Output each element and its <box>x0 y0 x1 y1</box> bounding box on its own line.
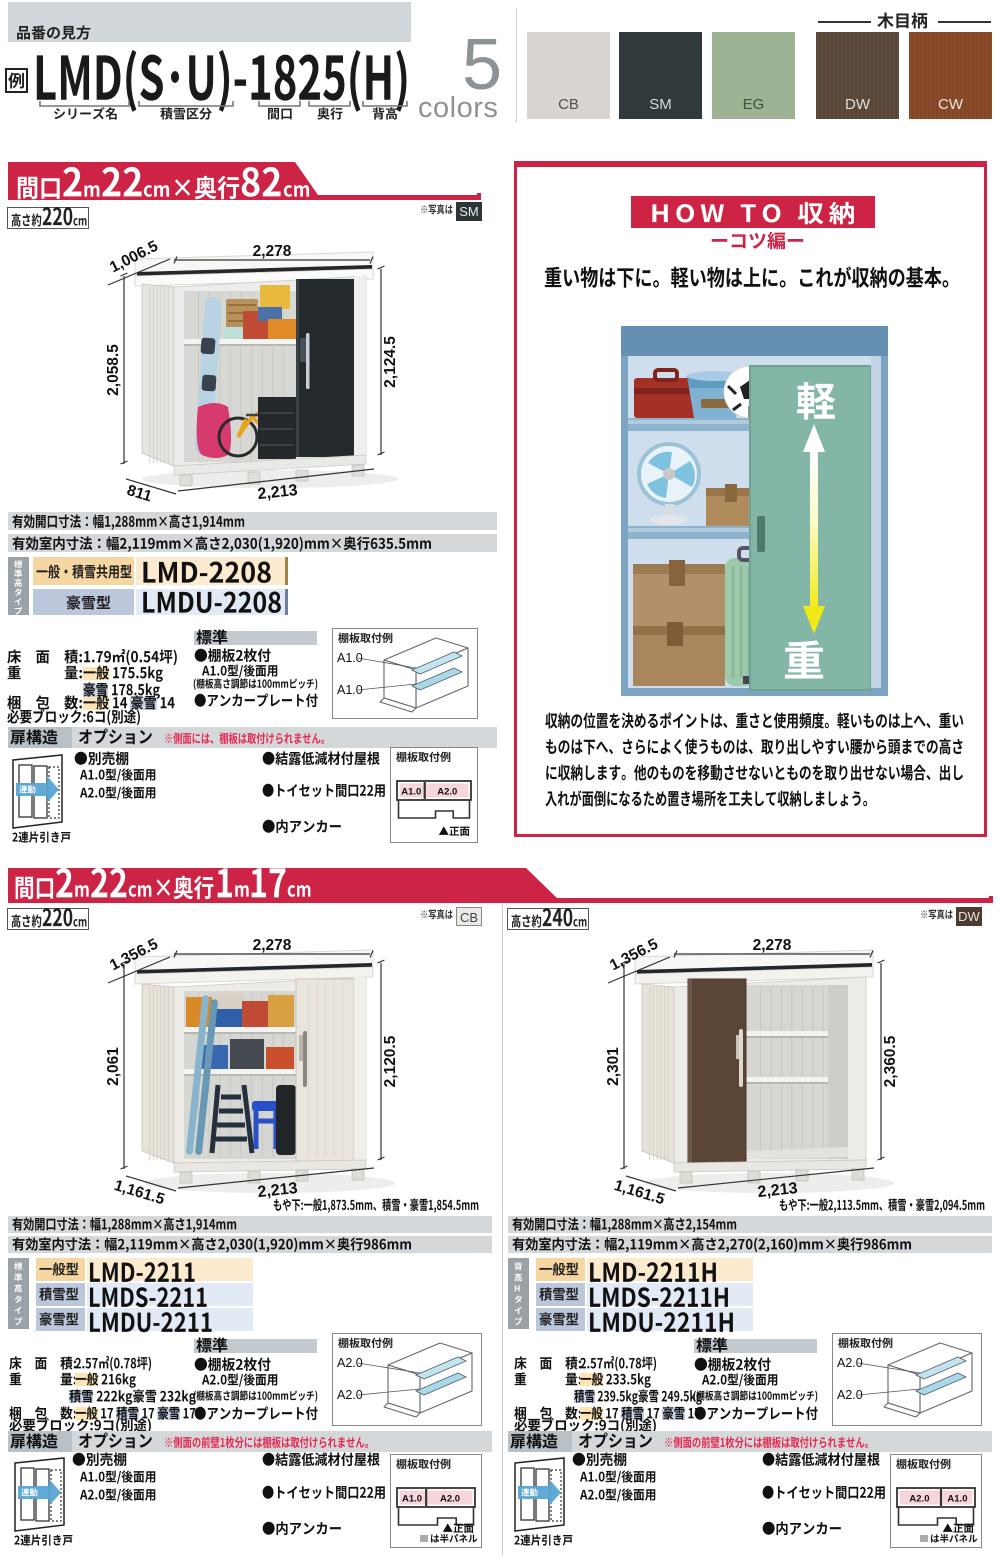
svg-text:811: 811 <box>125 482 154 506</box>
svg-text:A2.0: A2.0 <box>337 1356 363 1370</box>
svg-text:A1.0: A1.0 <box>947 1494 967 1505</box>
svg-text:2,278: 2,278 <box>253 243 292 260</box>
svg-text:2,120.5: 2,120.5 <box>382 1035 399 1087</box>
svg-text:A1.0: A1.0 <box>337 683 363 697</box>
svg-text:2,278: 2,278 <box>253 937 292 954</box>
svg-text:A2.0: A2.0 <box>837 1388 863 1402</box>
svg-text:2,278: 2,278 <box>753 937 792 954</box>
svg-text:A2.0: A2.0 <box>337 1388 363 1402</box>
svg-text:2,058.5: 2,058.5 <box>105 344 122 396</box>
svg-text:2,301: 2,301 <box>605 1047 622 1086</box>
svg-text:2,061: 2,061 <box>105 1047 122 1086</box>
svg-text:A1.0: A1.0 <box>402 1494 422 1505</box>
svg-text:A1.0: A1.0 <box>337 651 363 665</box>
svg-text:A1.0: A1.0 <box>401 787 421 798</box>
svg-text:2,124.5: 2,124.5 <box>382 336 399 388</box>
svg-text:A2.0: A2.0 <box>909 1494 929 1505</box>
svg-text:2,360.5: 2,360.5 <box>882 1035 899 1087</box>
svg-text:2,213: 2,213 <box>257 482 299 503</box>
svg-text:A2.0: A2.0 <box>437 787 457 798</box>
svg-text:A2.0: A2.0 <box>837 1356 863 1370</box>
svg-text:A2.0: A2.0 <box>440 1494 460 1505</box>
